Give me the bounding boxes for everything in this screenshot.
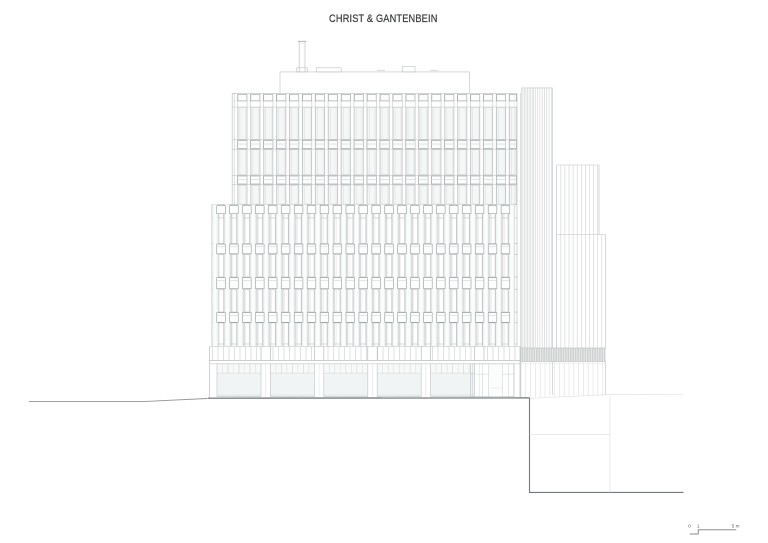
svg-text:0: 0 [688, 524, 691, 529]
svg-text:5 m: 5 m [732, 524, 740, 529]
svg-text:CHRIST & GANTENBEIN: CHRIST & GANTENBEIN [329, 13, 438, 25]
svg-text:1: 1 [697, 524, 700, 529]
